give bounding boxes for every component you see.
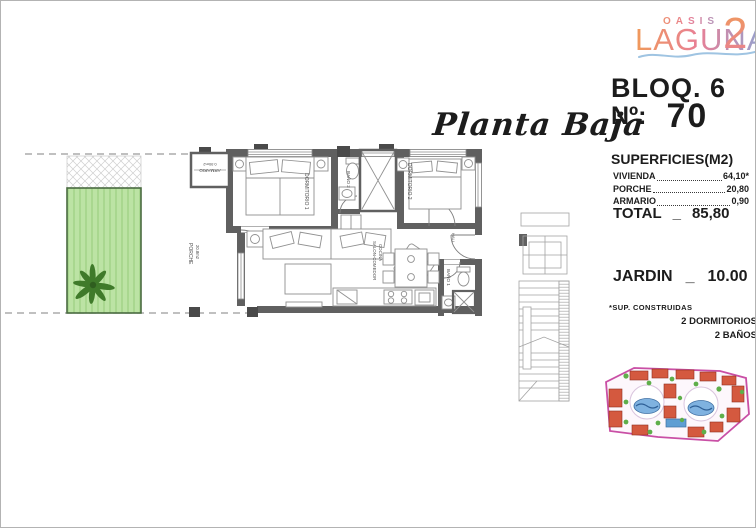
label-dormitorio2: DORMITORIO 2	[406, 163, 412, 200]
label-salon: SALON-COMEDOR	[372, 241, 377, 280]
feature-bedrooms: 2 DORMITORIOS	[607, 315, 756, 329]
total-value: 85,80	[692, 205, 730, 222]
label-salon-2: COCINA	[378, 244, 383, 261]
surface-value: 20,80	[726, 183, 749, 196]
coffee-table	[285, 264, 331, 294]
total-line: TOTAL _ 85,80	[613, 205, 730, 222]
shower-bano2	[360, 150, 396, 211]
surface-row-porche: PORCHE 20,80	[613, 183, 749, 196]
leader-dots	[657, 180, 722, 181]
flyer-page: OASIS LAGUNA 2 BLOQ. 6 Nº: 70 SUPERFICIE…	[0, 0, 756, 528]
surfaces-table: VIVIENDA 64,10* PORCHE 20,80 ARMARIO 0,9…	[613, 170, 749, 208]
leader-dots	[653, 192, 726, 193]
label-bano1: BAÑO 1	[446, 269, 452, 286]
surface-label: PORCHE	[613, 183, 652, 196]
hatched-area	[67, 156, 141, 188]
stair-core	[519, 213, 569, 401]
label-hall: HALL	[451, 233, 456, 244]
tv-unit	[286, 302, 322, 307]
features-list: 2 DORMITORIOS 2 BAÑOS	[607, 315, 756, 342]
garden-value: 10.00	[707, 268, 747, 286]
label-armario: ARMARIO	[199, 168, 221, 173]
kitchen-counter	[333, 288, 436, 306]
floor-plan: ARMARIO 0.90m2 DORMITORIO 1 BAÑO 2 DORMI…	[1, 101, 601, 431]
label-porche: PORCHE	[187, 243, 193, 265]
unit-number: 70	[667, 97, 709, 136]
label-armario-area: 0.90m2	[203, 162, 217, 167]
site-plan-map	[600, 362, 754, 450]
total-separator: _	[673, 205, 681, 222]
surface-label: VIVIENDA	[613, 170, 656, 183]
label-porche-area: 20.8m2	[195, 245, 200, 260]
surface-value: 64,10*	[723, 170, 749, 183]
garden-line: JARDIN _ 10.00	[613, 268, 748, 286]
total-label: TOTAL	[613, 205, 662, 222]
surface-row-vivienda: VIVIENDA 64,10*	[613, 170, 749, 183]
bed-dormitorio1	[233, 157, 328, 215]
label-bano2: BAÑO 2	[346, 171, 352, 188]
garden-label: JARDIN	[613, 268, 673, 286]
label-dormitorio1: DORMITORIO 1	[303, 173, 309, 210]
logo-wave-icon	[637, 48, 756, 62]
surface-value: 0,90	[731, 195, 749, 208]
surfaces-title: SUPERFICIES(M2)	[611, 151, 733, 167]
footnote: *SUP. CONSTRUIDAS	[609, 303, 692, 312]
feature-bathrooms: 2 BAÑOS	[607, 329, 756, 343]
garden-separator: _	[686, 268, 695, 286]
sofa	[247, 229, 391, 259]
garden-area	[67, 188, 141, 313]
